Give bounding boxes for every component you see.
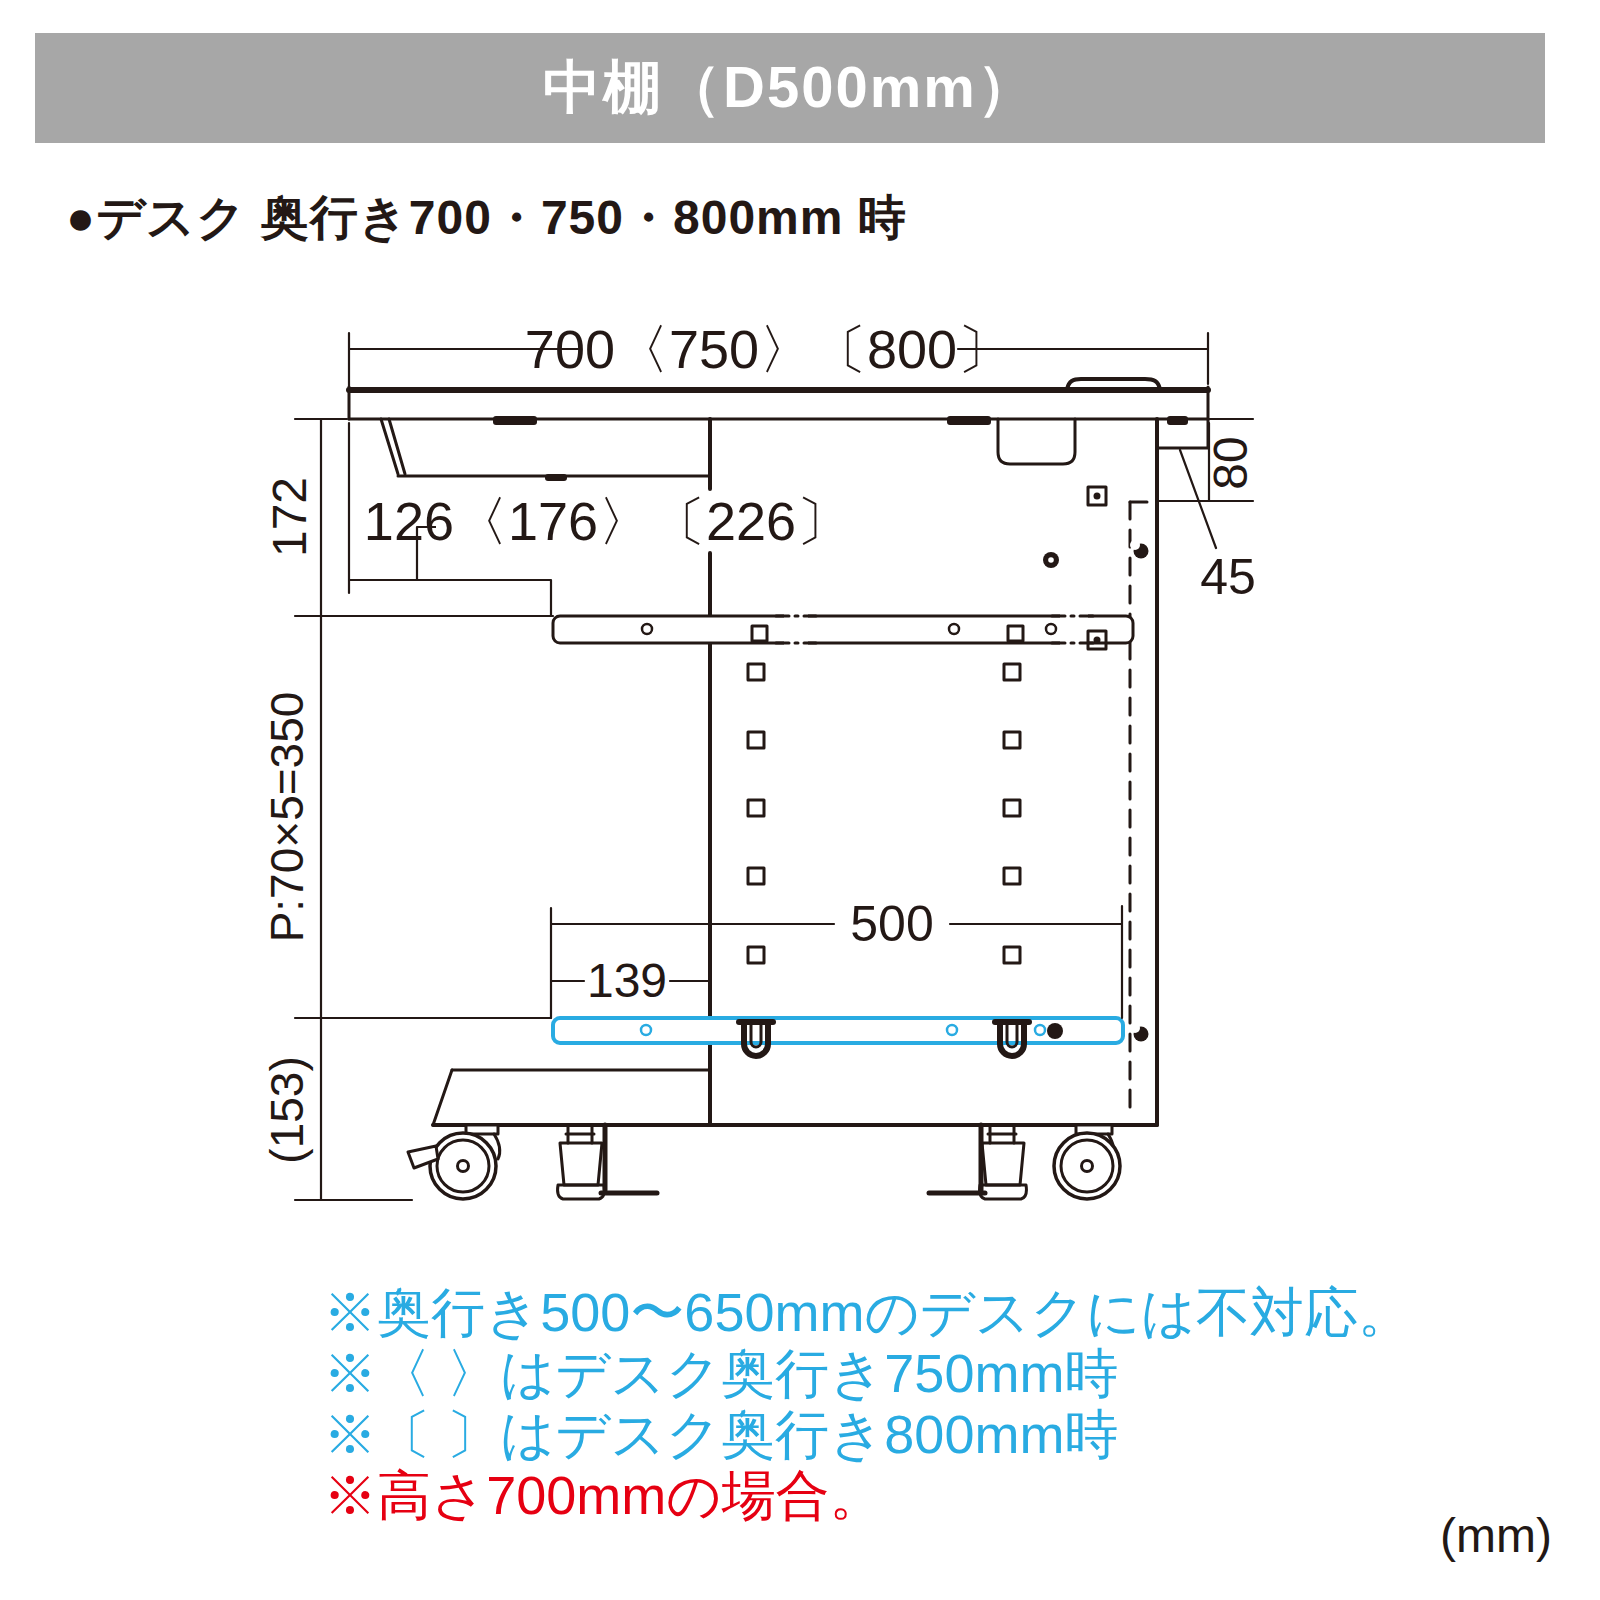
- note-line: ※〈 〉はデスク奥行き750mm時: [323, 1343, 1412, 1404]
- note-line: ※奥行き500〜650mmのデスクには不対応。: [323, 1282, 1412, 1343]
- dim-label-top-clearance: 172: [263, 477, 316, 557]
- adjuster-foot-left: [558, 1125, 605, 1199]
- dim-label-rear-overhang: 45: [1200, 549, 1256, 605]
- under-desk-bracket: [998, 419, 1075, 464]
- dimension-lines: [295, 333, 1253, 1200]
- adjuster-foot-right: [980, 1125, 1027, 1199]
- dim-label-shelf-depth: 500: [850, 896, 933, 952]
- dim-label-front-offset: 139: [587, 954, 667, 1007]
- middle-shelf-rail-highlighted: [553, 1018, 1123, 1043]
- note-line: ※高さ700mmの場合。: [323, 1465, 1412, 1526]
- dim-label-floor-clearance: (153): [261, 1056, 313, 1163]
- dim-label-desk-depth: 700〈750〉〔800〕: [525, 319, 1011, 379]
- mounting-tabs: [493, 416, 1188, 481]
- caster-left: [408, 1125, 500, 1199]
- under-desk-tray: [381, 419, 710, 476]
- unit-label: (mm): [1440, 1508, 1552, 1563]
- note-line: ※〔 〕はデスク奥行き800mm時: [323, 1404, 1412, 1465]
- dim-label-shelf-front-setback: 126〈176〉〔226〕: [364, 491, 850, 551]
- dim-label-rear-rail-height: 80: [1204, 436, 1257, 489]
- dim-label-pitch: P:70×5=350: [261, 692, 313, 943]
- caster-right: [1054, 1125, 1120, 1199]
- floor-brackets: [601, 1125, 985, 1193]
- rear-fittings: [1043, 487, 1149, 1042]
- upper-shelf-rail: [553, 611, 1133, 648]
- desk-top: [349, 379, 1208, 419]
- footnotes: ※奥行き500〜650mmのデスクには不対応。 ※〈 〉はデスク奥行き750mm…: [323, 1282, 1412, 1526]
- page: 中棚（D500mm） ●デスク 奥行き700・750・800mm 時: [0, 0, 1600, 1600]
